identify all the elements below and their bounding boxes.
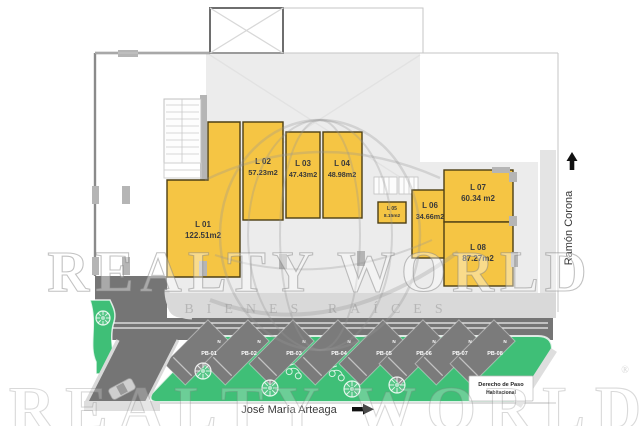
pillar [92,186,99,204]
up-arrow-icon [567,152,578,170]
lot-label: L 01 [195,220,211,229]
site-plan: N PB-01 N PB-02 N PB-03 N PB-04 N PB-05 … [0,0,640,426]
lot-l03: L 03 47.43m2 [286,132,320,218]
pillar [509,216,517,226]
lot-area: 47.43m2 [289,170,317,179]
pillar [492,167,510,173]
lot-l04: L 04 48.98m2 [323,132,362,218]
stall-label: PB-05 [376,351,392,357]
lot-label: L 05 [387,206,397,212]
watermark-tagline: BIENES RAÍCES [184,300,455,317]
lot-area: 57.23m2 [248,168,278,177]
lot-l02: L 02 57.23m2 [243,122,283,220]
lot-label: L 03 [295,159,311,168]
stall-label: PB-08 [487,351,503,357]
stall-label: PB-01 [201,351,217,357]
lot-label: L 07 [470,183,486,192]
lot-area: 48.98m2 [328,170,356,179]
lot-label: L 06 [422,201,438,210]
watermark-brand: REALTY WORLD [47,239,592,304]
patio-box [210,8,423,53]
watermark-brand-bottom: REALTY WORLD [9,373,640,426]
lot-area: 60.34 m2 [461,194,495,203]
lot-l07: L 07 60.34 m2 [444,170,513,222]
stall-label: PB-07 [452,351,468,357]
stall-label: PB-06 [416,351,432,357]
stall-label: PB-03 [286,351,302,357]
stall-label: PB-02 [241,351,257,357]
site-plan-page: N PB-01 N PB-02 N PB-03 N PB-04 N PB-05 … [0,0,640,426]
tree-icon [96,311,110,325]
lot-label: L 04 [334,159,350,168]
stall-label: PB-04 [331,351,348,357]
pillar [509,172,517,182]
pillar [122,186,130,204]
watermark-registered: ® [621,365,629,376]
